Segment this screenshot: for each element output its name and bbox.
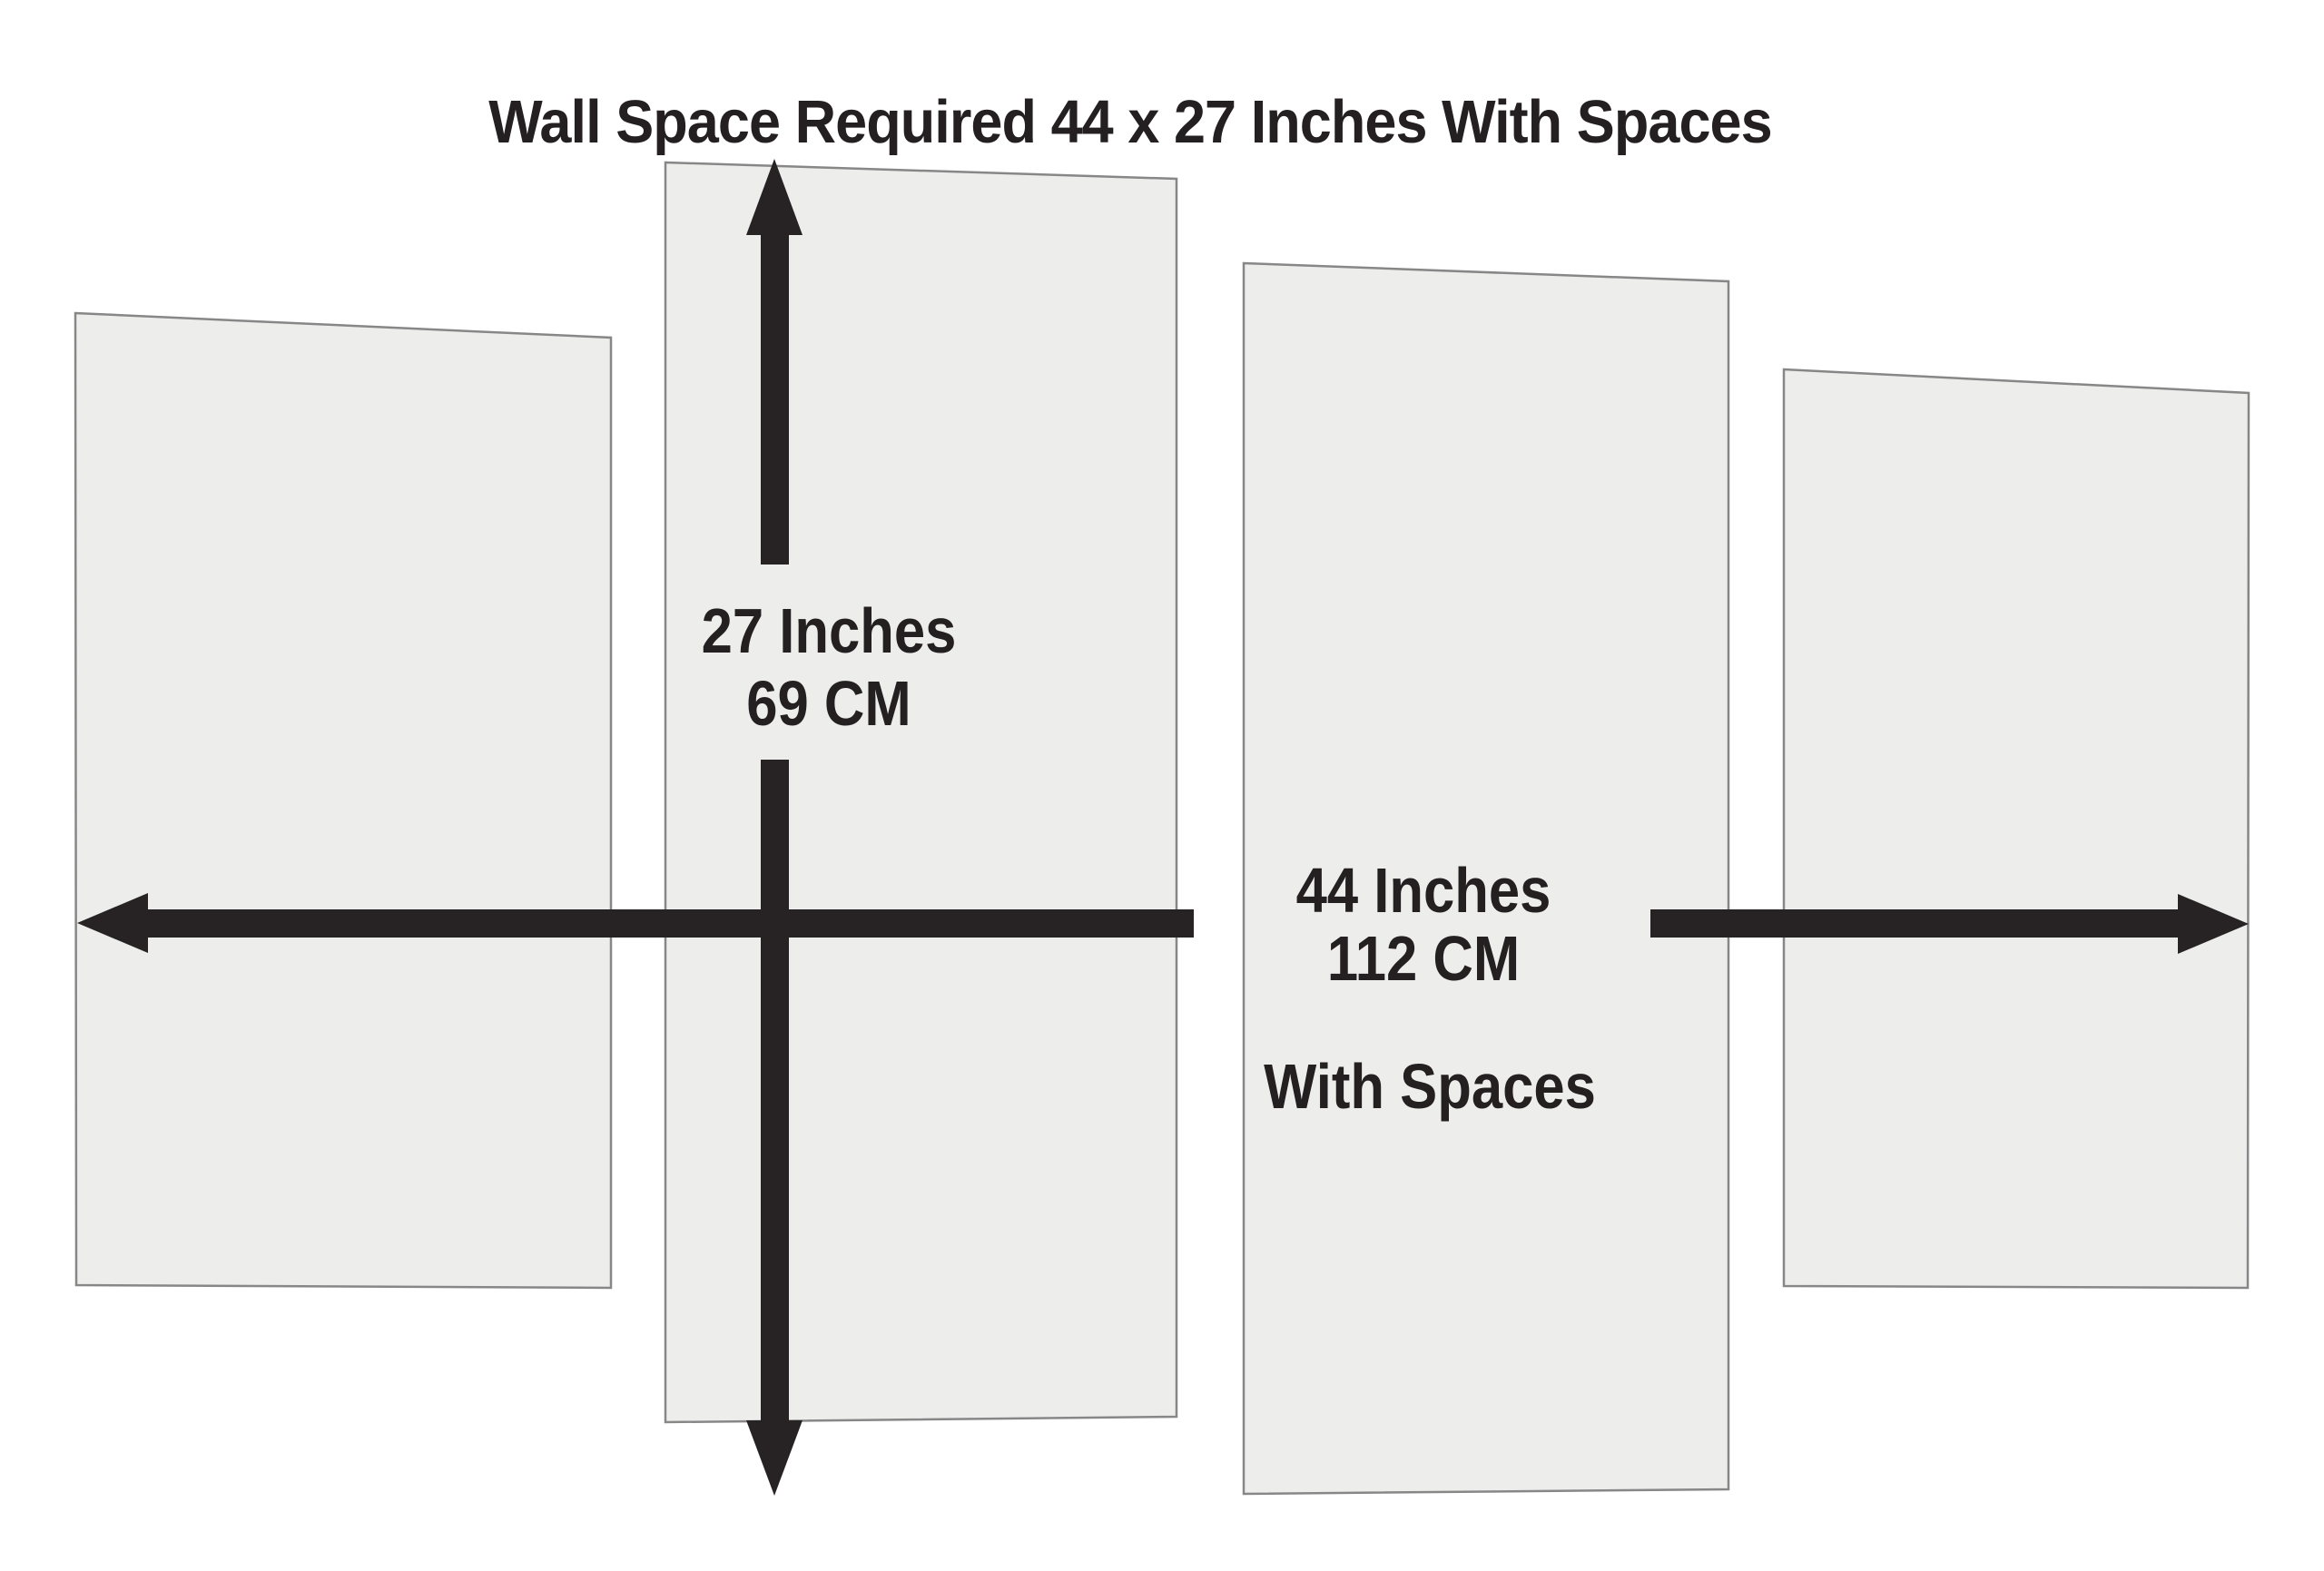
canvas-panel-2	[665, 162, 1177, 1422]
horizontal-arrow-right-shaft	[1650, 909, 2181, 938]
width-dimension-label: 44 Inches 112 CM	[1184, 857, 1663, 993]
horizontal-arrow-left-shaft	[141, 909, 1194, 938]
height-inches-value: 27 Inches	[589, 594, 1068, 667]
height-cm-value: 69 CM	[589, 667, 1068, 740]
dimension-diagram-graphics	[0, 0, 2324, 1571]
vertical-arrow-upper-shaft	[761, 229, 789, 565]
diagram-title: Wall Space Required 44 x 27 Inches With …	[68, 86, 2193, 159]
with-spaces-label: With Spaces	[1190, 1053, 1669, 1121]
height-dimension-label: 27 Inches 69 CM	[589, 594, 1068, 740]
width-cm-value: 112 CM	[1184, 925, 1663, 993]
width-inches-value: 44 Inches	[1184, 857, 1663, 925]
wall-space-diagram: Wall Space Required 44 x 27 Inches With …	[0, 0, 2324, 1571]
arrow-down-head-icon	[746, 1420, 803, 1496]
canvas-panel-4	[1784, 369, 2249, 1288]
vertical-arrow-lower-shaft	[761, 760, 789, 1424]
canvas-panel-1	[75, 313, 611, 1288]
